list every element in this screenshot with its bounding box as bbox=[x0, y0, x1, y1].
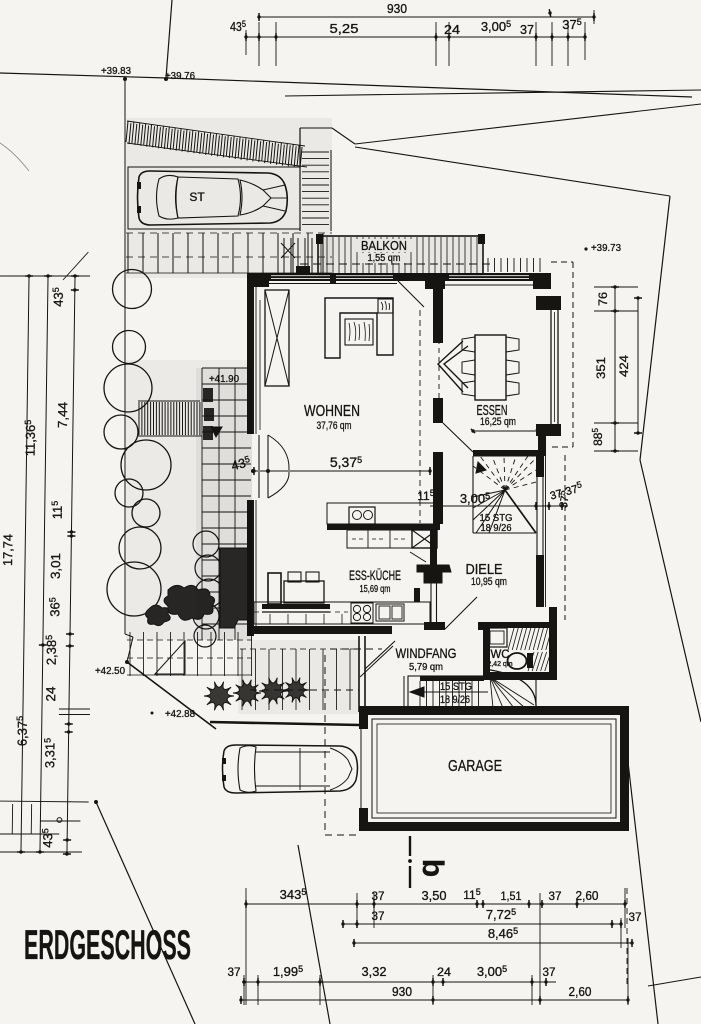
svg-text:2,60: 2,60 bbox=[569, 984, 592, 999]
svg-text:3,50: 3,50 bbox=[422, 888, 447, 903]
svg-text:24: 24 bbox=[437, 965, 451, 979]
svg-text:+42.88: +42.88 bbox=[165, 709, 195, 720]
svg-text:WINDFANG: WINDFANG bbox=[396, 645, 457, 661]
svg-text:+39.73: +39.73 bbox=[591, 243, 621, 254]
svg-text:10,95 qm: 10,95 qm bbox=[471, 576, 507, 588]
svg-text:37: 37 bbox=[629, 910, 642, 924]
svg-text:7,44: 7,44 bbox=[55, 402, 70, 428]
svg-text:1,51: 1,51 bbox=[501, 889, 522, 903]
svg-text:76: 76 bbox=[596, 292, 610, 306]
svg-text:15,69 qm: 15,69 qm bbox=[360, 584, 391, 595]
svg-text:37: 37 bbox=[543, 965, 556, 979]
svg-text:18 9/26: 18 9/26 bbox=[440, 694, 470, 706]
svg-text:WOHNEN: WOHNEN bbox=[304, 403, 360, 420]
svg-text:ESS-KÜCHE: ESS-KÜCHE bbox=[349, 566, 401, 583]
svg-text:37: 37 bbox=[372, 909, 385, 923]
svg-text:5,79 qm: 5,79 qm bbox=[409, 662, 443, 673]
svg-text:37,76 qm: 37,76 qm bbox=[317, 420, 352, 432]
svg-text:+42.50: +42.50 bbox=[95, 666, 125, 677]
svg-text:3,01: 3,01 bbox=[48, 553, 63, 579]
svg-text:11,365: 11,365 bbox=[23, 420, 39, 457]
svg-text:18 9/26: 18 9/26 bbox=[481, 522, 512, 534]
svg-text:37: 37 bbox=[520, 22, 534, 37]
svg-text:+39.83: +39.83 bbox=[101, 66, 131, 77]
svg-text:16,25 qm: 16,25 qm bbox=[480, 416, 516, 428]
svg-text:37: 37 bbox=[549, 889, 562, 903]
svg-text:37: 37 bbox=[228, 965, 241, 979]
svg-text:351: 351 bbox=[594, 357, 608, 379]
svg-text:424: 424 bbox=[617, 355, 631, 377]
svg-text:5,25: 5,25 bbox=[330, 21, 359, 36]
svg-text:24: 24 bbox=[43, 687, 58, 702]
svg-text:24: 24 bbox=[444, 22, 460, 37]
svg-text:+39.76: +39.76 bbox=[165, 71, 195, 82]
svg-text:930: 930 bbox=[387, 1, 407, 16]
svg-text:3,32: 3,32 bbox=[362, 964, 387, 979]
svg-text:930: 930 bbox=[392, 984, 412, 999]
svg-text:b: b bbox=[416, 859, 449, 877]
svg-text:2,60: 2,60 bbox=[576, 888, 599, 903]
svg-text:GARAGE: GARAGE bbox=[448, 758, 502, 775]
svg-text:17,74: 17,74 bbox=[0, 534, 15, 566]
svg-text:37: 37 bbox=[372, 889, 385, 903]
svg-text:ERDGESCHOSS: ERDGESCHOSS bbox=[24, 921, 191, 968]
svg-text:15 STG: 15 STG bbox=[440, 681, 472, 693]
